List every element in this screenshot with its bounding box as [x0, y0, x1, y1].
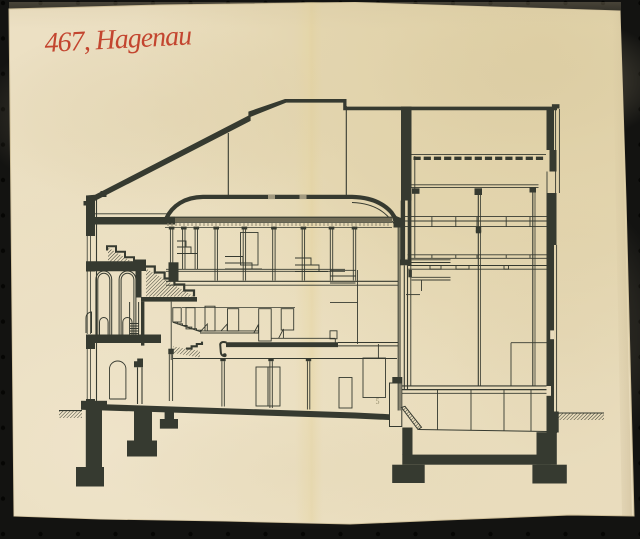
- svg-text:5: 5: [376, 397, 380, 406]
